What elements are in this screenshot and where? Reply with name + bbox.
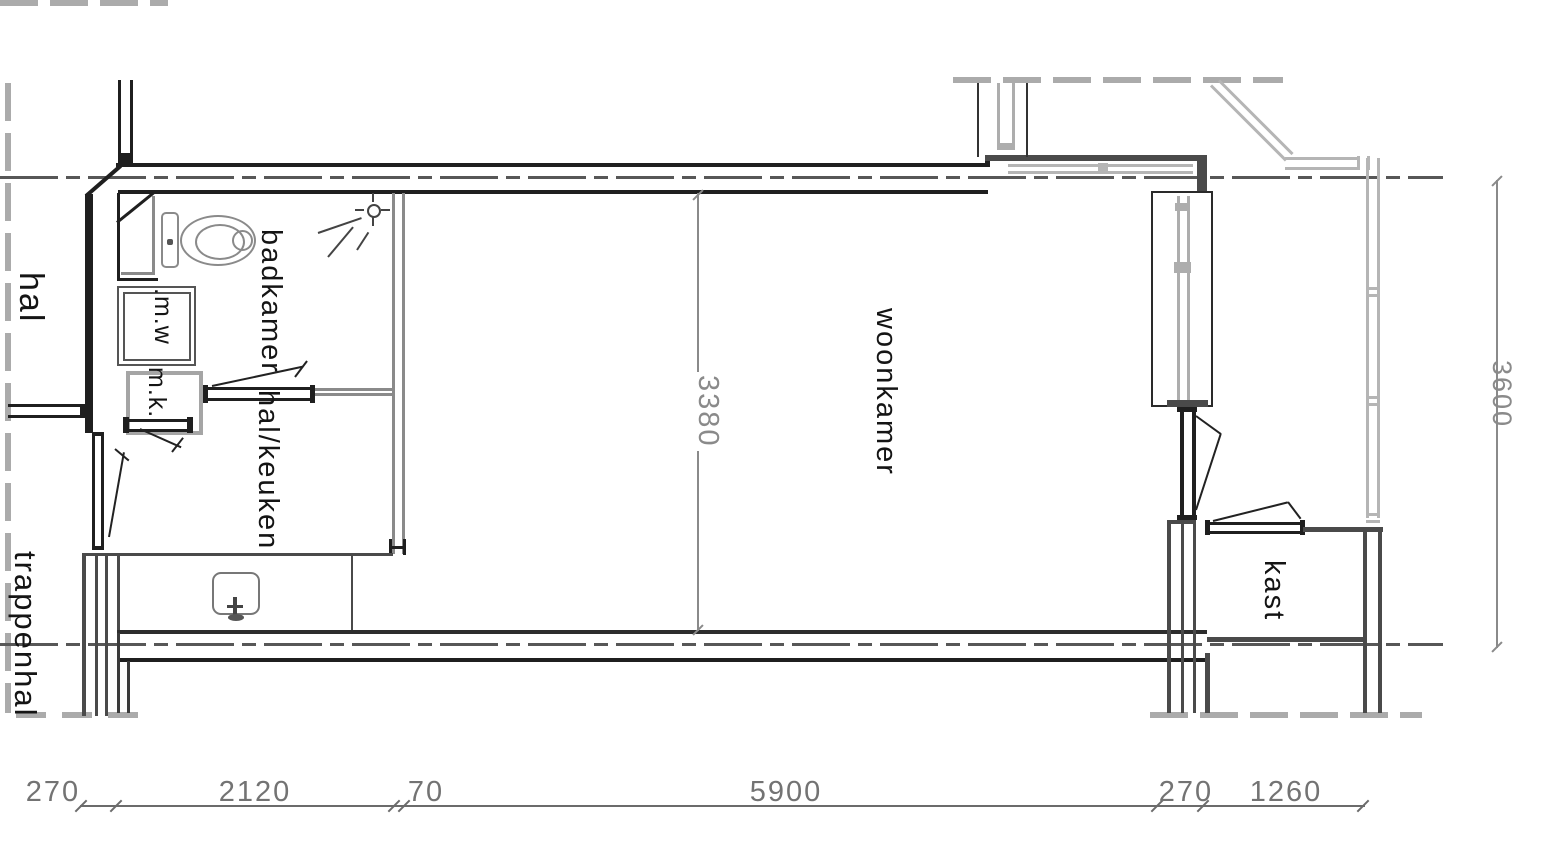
railing-diagonal [1210, 84, 1287, 161]
badkamer-door-cap [310, 385, 315, 403]
shower-head-tick [372, 193, 374, 202]
shower-spray-ray [318, 217, 362, 234]
kast-door-cap [1205, 520, 1210, 535]
railing-vertical [1366, 158, 1369, 518]
fixture-label-washing-machine: .m.w [150, 288, 175, 345]
shower-front-diagonal [116, 192, 154, 224]
kast-door-swing [1287, 501, 1301, 519]
railing-horizontal [1285, 157, 1359, 160]
railing-divider [1366, 396, 1380, 399]
room-label-trappenhal: trappenhal [10, 551, 41, 718]
centerline-top [0, 176, 1443, 179]
bay-wall-right [1197, 158, 1207, 195]
room-label-badkamer: badkamer [256, 229, 285, 374]
kast-door-swing [1213, 501, 1288, 522]
kast-wall-left-cap [1167, 520, 1196, 524]
dashed-boundary-top-right [953, 77, 1283, 83]
kast-wall-right [1378, 532, 1382, 713]
hal-door-swing [108, 452, 125, 537]
dimension-value: 270 [1159, 778, 1213, 807]
railing-end-cap [1366, 520, 1380, 523]
shower-head-tick [372, 217, 374, 226]
shower-wall-h [117, 278, 158, 281]
shower-spray-ray [327, 226, 354, 257]
hal-doorway-line [8, 415, 85, 418]
shower-spray-ray [356, 232, 369, 251]
room-label-hal-keuken: hal/keuken [253, 390, 282, 550]
balcony-door-leaf [1192, 407, 1196, 520]
bay-glazing-mullion [1098, 163, 1108, 174]
dashed-boundary-top-left [0, 0, 168, 6]
counter-left-edge [117, 553, 120, 633]
window-jamb-right [1026, 83, 1028, 157]
faucet-icon [227, 605, 243, 608]
railing-divider [1366, 287, 1380, 290]
partition-horizontal [313, 393, 395, 396]
kast-wall-left [1167, 520, 1171, 713]
tall-window-glazing [1177, 196, 1180, 402]
dimension-value: 5900 [750, 778, 823, 807]
toilet-drain [232, 230, 253, 251]
meter-closet-door-bar [125, 419, 193, 422]
wall-left [85, 194, 93, 433]
pier-cap [118, 153, 133, 163]
tall-window-sill [1167, 400, 1208, 407]
hal-door-leaf [92, 432, 95, 550]
meter-closet-door-cap [123, 417, 129, 433]
pier-right-line [130, 80, 133, 163]
tall-window-divider [1174, 262, 1191, 273]
room-label-kast: kast [1259, 560, 1288, 621]
floor-plan: 270 2120 70 5900 270 1260 3380 3600 hal … [0, 0, 1561, 862]
trappenhal-wall-line [82, 553, 86, 716]
shower-inner-v [152, 196, 155, 275]
partition-horizontal [313, 388, 395, 391]
wall-top-inner [118, 190, 988, 194]
dimension-value: 2120 [219, 778, 292, 807]
shower-head-tick [381, 209, 390, 211]
window-jamb-left [977, 83, 979, 157]
wall-bottom-left-return [127, 661, 130, 713]
badkamer-door-cap [203, 385, 208, 403]
room-label-hal: hal [14, 272, 48, 323]
kast-wall-left [1193, 524, 1196, 713]
shower-inner-h [121, 272, 155, 275]
kast-wall-below [1205, 653, 1210, 713]
counter-divider [351, 555, 353, 632]
tall-window-glazing [1187, 196, 1190, 402]
kast-wall-bottom [1207, 637, 1367, 642]
pier-left-line [118, 80, 121, 163]
partition-end-cap [389, 546, 406, 549]
trappenhal-wall-line [105, 555, 108, 716]
dimension-value: 1260 [1250, 778, 1323, 807]
hal-door-leaf [101, 432, 104, 550]
meter-closet-door-bar [125, 429, 193, 432]
railing-diagonal [1218, 79, 1294, 155]
wall-bottom-left-return [117, 633, 120, 713]
balcony-door-swing [1195, 415, 1221, 435]
balcony-door-cap [1177, 407, 1197, 412]
kast-door-leaf [1207, 531, 1303, 534]
counter-top-edge [82, 553, 393, 556]
hal-door-cap [92, 432, 104, 436]
trappenhal-wall-line [95, 555, 98, 716]
wall-bottom-inner [117, 630, 1207, 634]
tall-window-divider [1175, 203, 1190, 211]
partition-vertical [402, 193, 405, 554]
kast-wall-top-right [1303, 527, 1383, 532]
window-frame-line [1012, 83, 1015, 150]
kast-door-leaf [1207, 522, 1303, 525]
railing-joint [1357, 156, 1360, 170]
shower-head-icon [367, 204, 381, 218]
wall-bottom-outer [117, 658, 1207, 662]
fixture-label-meter-closet: m.k. [144, 367, 169, 418]
dimension-value: 70 [408, 778, 444, 807]
railing-divider [1366, 294, 1380, 297]
balcony-door-swing [1195, 434, 1222, 511]
tall-window-frame [1151, 191, 1213, 407]
railing-vertical [1377, 158, 1380, 518]
railing-divider [1366, 403, 1380, 406]
toilet-flush-button [167, 239, 173, 245]
hal-doorway-cap [80, 404, 85, 418]
dimension-value-3380: 3380 [693, 372, 722, 451]
bay-wall-outer [985, 155, 1207, 161]
partition-vertical [392, 193, 395, 554]
hal-doorway-line [8, 404, 85, 407]
railing-horizontal [1285, 167, 1359, 170]
hal-door-cap [92, 546, 104, 550]
meter-closet-door-cap [187, 417, 193, 433]
centerline-bottom [0, 643, 1443, 646]
dimension-value-3600: 3600 [1488, 360, 1515, 428]
shower-wall-v [117, 193, 120, 281]
window-frame-line [997, 83, 1000, 150]
faucet-icon [228, 614, 244, 621]
kast-wall-left [1181, 524, 1184, 713]
wall-top-outer [116, 163, 990, 167]
balcony-door-leaf [1180, 407, 1184, 520]
dimension-value: 270 [26, 778, 80, 807]
room-label-woonkamer: woonkamer [871, 308, 900, 476]
railing-end-cap [1366, 513, 1380, 516]
shower-head-tick [355, 209, 364, 211]
window-frame-cap [997, 143, 1015, 150]
kast-wall-right [1363, 532, 1367, 713]
